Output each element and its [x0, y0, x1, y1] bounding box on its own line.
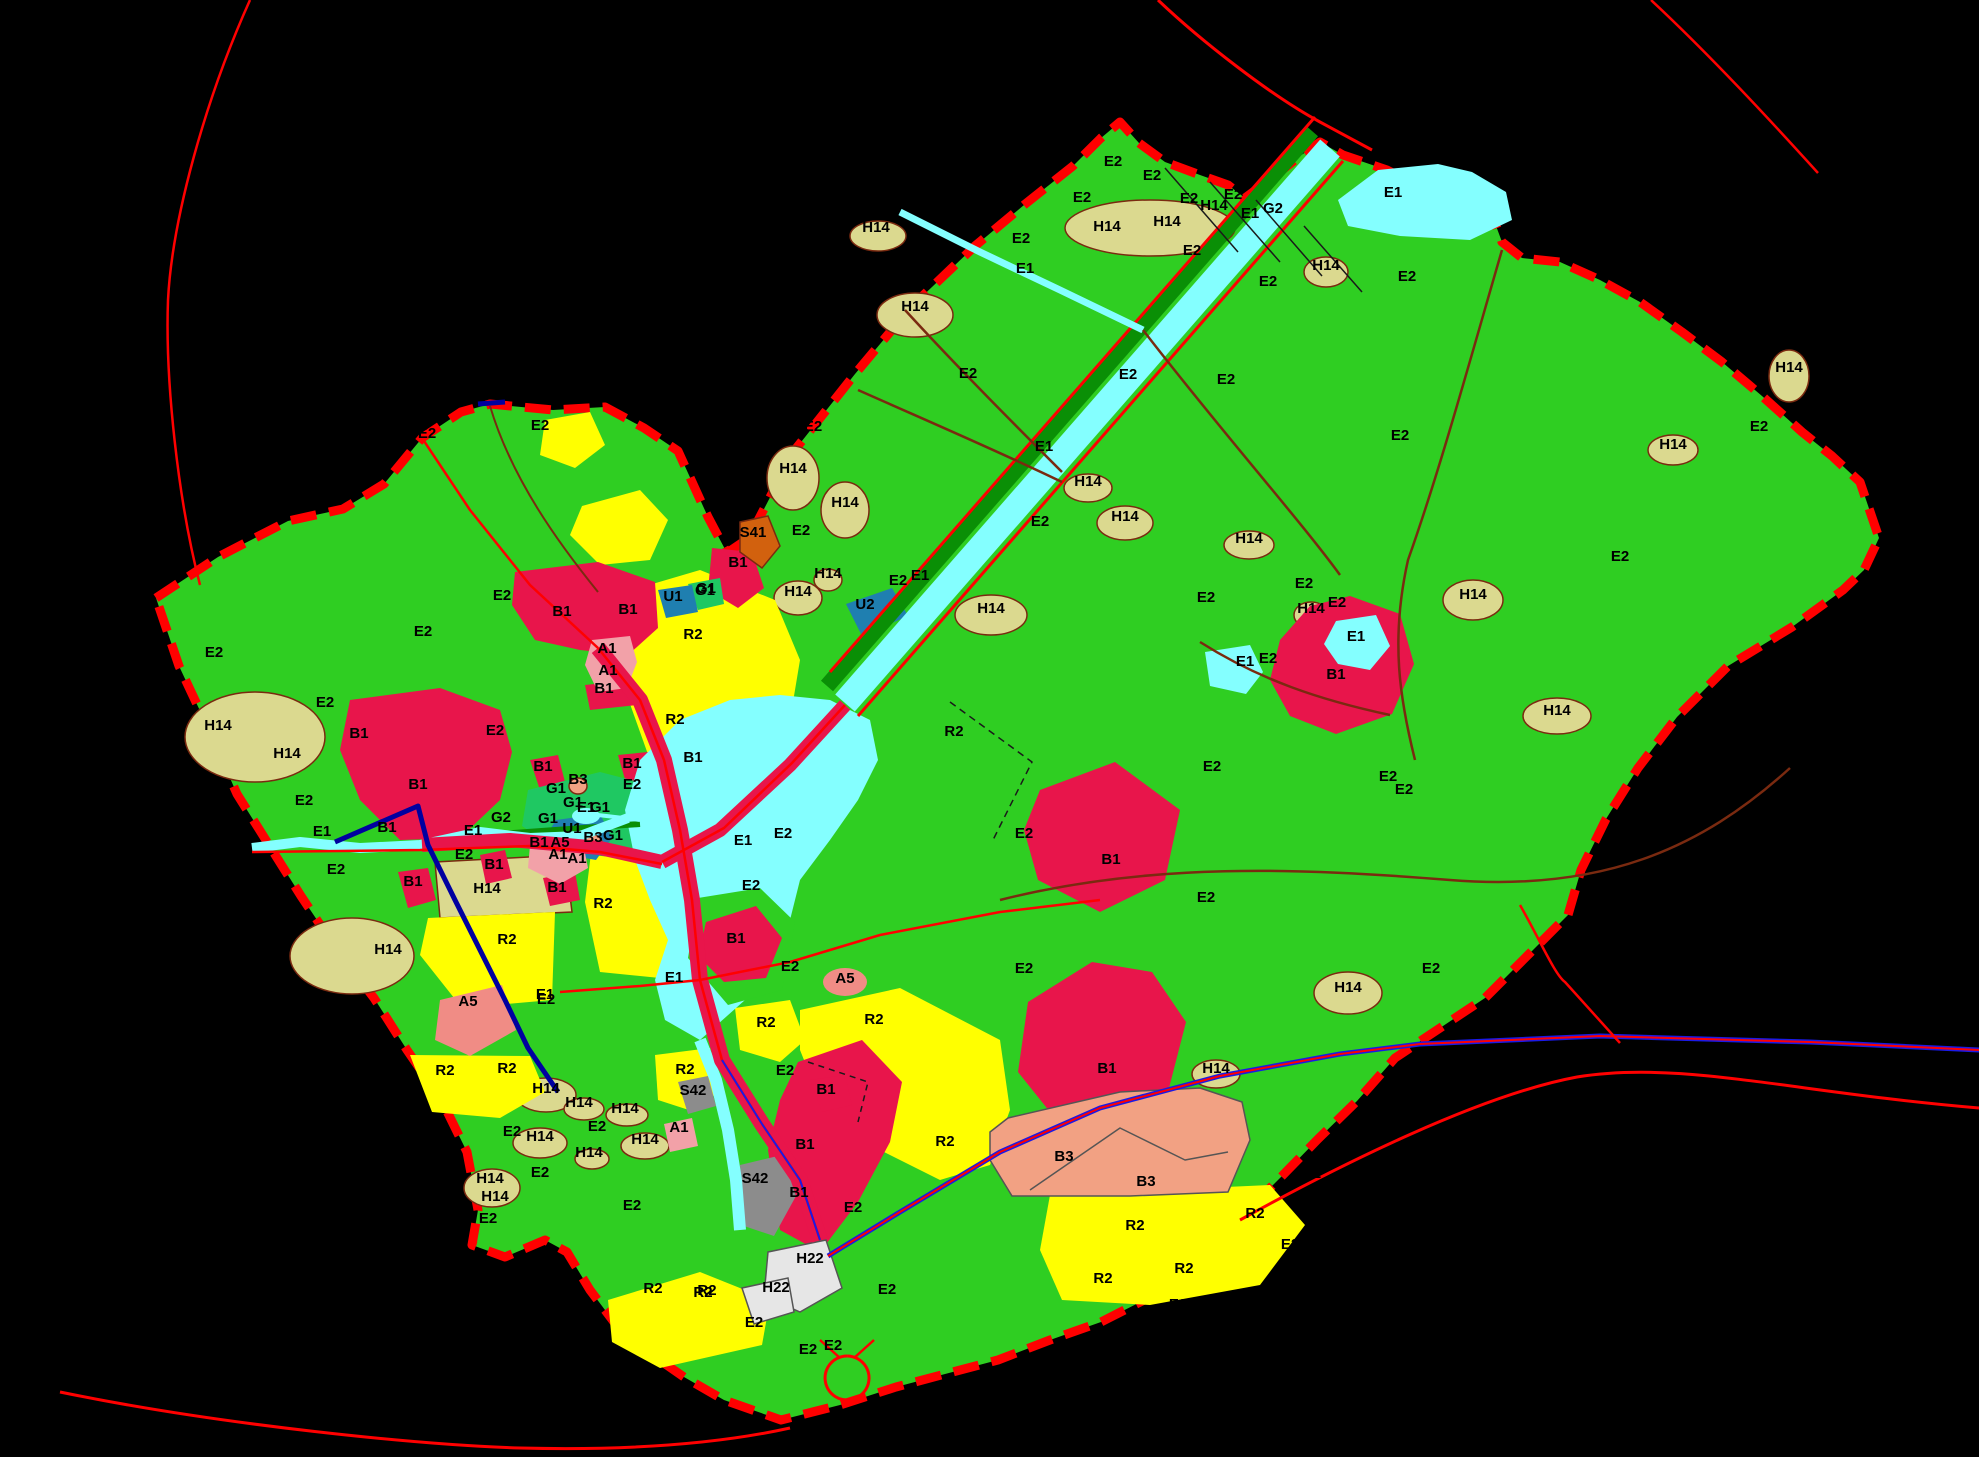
- zone-label: H14: [532, 1080, 560, 1097]
- zone-label: E2: [1197, 589, 1215, 606]
- zone-label: E2: [1398, 268, 1416, 285]
- zone-label: E2: [742, 877, 760, 894]
- zone-label: G1: [538, 810, 558, 827]
- zone-label: E2: [623, 1197, 641, 1214]
- zone-label: E2: [455, 846, 473, 863]
- zone-label: R2: [1125, 1217, 1144, 1234]
- zone-label: E2: [434, 1244, 452, 1261]
- zone-label: H14: [565, 1094, 593, 1111]
- zone-label: H14: [1153, 213, 1181, 230]
- zone-label: B3: [583, 829, 602, 846]
- zone-label: B3: [1054, 1148, 1073, 1165]
- zone-label: E2: [1183, 242, 1201, 259]
- zone-label: E2: [588, 1118, 606, 1135]
- zone-label: E2: [1169, 1296, 1187, 1313]
- zone-label: E2: [1422, 960, 1440, 977]
- zone-label: E2: [1119, 366, 1137, 383]
- zone-label: B1: [789, 1184, 808, 1201]
- zone-label: H14: [779, 460, 807, 477]
- zone-label: E2: [889, 572, 907, 589]
- zone-label: E2: [792, 522, 810, 539]
- zone-label: R2: [497, 931, 516, 948]
- zone-label: E1: [577, 799, 595, 816]
- zone-label: B1: [1097, 1060, 1116, 1077]
- zone-label: E2: [1035, 144, 1053, 161]
- zone-label: S41: [740, 524, 767, 541]
- zone-label: E2: [781, 958, 799, 975]
- zone-label: R2: [675, 1061, 694, 1078]
- zone-label: R2: [1093, 1270, 1112, 1287]
- zone-label: E2: [887, 192, 905, 209]
- zone-label: E2: [205, 644, 223, 661]
- zone-label: H14: [1543, 702, 1571, 719]
- zone-label: B1: [622, 755, 641, 772]
- zoning-map-svg: E2E2E2E2E2H14H14H14E2E1G2E2E1H14E1H14E2E…: [0, 0, 1979, 1457]
- zone-label: H14: [1200, 197, 1228, 214]
- zone-label: E2: [774, 825, 792, 842]
- zone-label: B1: [349, 725, 368, 742]
- zone-label: B1: [533, 758, 552, 775]
- zone-label: E1: [1035, 438, 1053, 455]
- zone-label: H14: [814, 565, 842, 582]
- zone-label: E2: [799, 1341, 817, 1358]
- zone-label: E2: [1379, 768, 1397, 785]
- zone-label: H14: [575, 1144, 603, 1161]
- zone-label: H14: [526, 1128, 554, 1145]
- zone-label: E1: [1016, 260, 1034, 277]
- zone-h14-west-big: [185, 692, 325, 782]
- zone-label: E2: [959, 365, 977, 382]
- zone-label: E2: [1395, 781, 1413, 798]
- zone-label: B1: [529, 834, 548, 851]
- zone-label: U2: [855, 596, 874, 613]
- zone-label: E2: [1015, 960, 1033, 977]
- zone-label: E2: [776, 1062, 794, 1079]
- zone-label: E2: [1303, 1165, 1321, 1182]
- zone-label: B3: [1136, 1173, 1155, 1190]
- zone-label: G2: [1263, 200, 1283, 217]
- zone-label: E2: [1328, 594, 1346, 611]
- zone-label: E2: [531, 417, 549, 434]
- zone-label: B3: [568, 771, 587, 788]
- zone-label: B1: [403, 873, 422, 890]
- zone-label: B1: [795, 1136, 814, 1153]
- zone-label: H14: [481, 1188, 509, 1205]
- zone-label: A5: [835, 970, 854, 987]
- zone-label: R2: [1174, 1260, 1193, 1277]
- zone-label: B1: [594, 680, 613, 697]
- zone-label: E2: [1143, 167, 1161, 184]
- zone-label: A1: [598, 662, 617, 679]
- zone-label: H22: [796, 1250, 824, 1267]
- zone-label: E2: [1750, 418, 1768, 435]
- zone-label: H14: [611, 1100, 639, 1117]
- zone-label: E2: [418, 425, 436, 442]
- zone-label: B1: [408, 776, 427, 793]
- zone-label: H14: [631, 1131, 659, 1148]
- zone-label: B1: [1326, 666, 1345, 683]
- zone-label: E1: [313, 823, 331, 840]
- zone-label: E2: [745, 1314, 763, 1331]
- zone-label: R2: [683, 626, 702, 643]
- zone-label: E2: [493, 587, 511, 604]
- zone-label: E2: [1281, 1236, 1299, 1253]
- zone-label: E1: [1236, 653, 1254, 670]
- zone-label: E2: [1012, 230, 1030, 247]
- zone-label: R2: [435, 1062, 454, 1079]
- zone-label: E2: [295, 792, 313, 809]
- zone-label: R2: [643, 1280, 662, 1297]
- zone-label: R2: [935, 1133, 954, 1150]
- zone-label: H14: [204, 717, 232, 734]
- zone-label: H14: [977, 600, 1005, 617]
- zone-label: S42: [742, 1170, 769, 1187]
- zone-label: H14: [831, 494, 859, 511]
- zone-label: H22: [762, 1279, 790, 1296]
- zone-label: E2: [824, 1337, 842, 1354]
- zone-label: B1: [547, 879, 566, 896]
- zone-label: B1: [552, 603, 571, 620]
- zone-label: G1: [695, 582, 715, 599]
- zone-label: B1: [484, 856, 503, 873]
- zone-label: R2: [944, 723, 963, 740]
- zone-label: H14: [1202, 1060, 1230, 1077]
- zone-label: E2: [1197, 889, 1215, 906]
- zone-label: E2: [1015, 825, 1033, 842]
- zone-label: E2: [1180, 190, 1198, 207]
- zone-label: E2: [486, 722, 504, 739]
- zone-label: E1: [1241, 205, 1259, 222]
- zone-label: A1: [548, 846, 567, 863]
- zone-label: E2: [1611, 548, 1629, 565]
- zone-label: H14: [1111, 508, 1139, 525]
- zone-label: E1: [1347, 628, 1365, 645]
- zone-label: R2: [864, 1011, 883, 1028]
- zone-label: B1: [726, 930, 745, 947]
- zone-label: E2: [878, 1281, 896, 1298]
- zone-label: E2: [1104, 153, 1122, 170]
- zone-label: A5: [458, 993, 477, 1010]
- zone-label: U1: [663, 588, 682, 605]
- zone-label: H14: [473, 880, 501, 897]
- zone-h14-neck1: [767, 446, 819, 510]
- zone-label: B1: [377, 819, 396, 836]
- zone-label: E2: [428, 1120, 446, 1137]
- zone-label: B1: [683, 749, 702, 766]
- zone-label: E2: [623, 776, 641, 793]
- zone-label: H14: [1459, 586, 1487, 603]
- navy-boundary-mark: [478, 402, 505, 404]
- zone-label: E1: [536, 986, 554, 1003]
- zone-h14-east4: [1769, 350, 1809, 402]
- zone-label: E2: [1259, 273, 1277, 290]
- zone-label: E2: [804, 418, 822, 435]
- zone-label: H14: [374, 941, 402, 958]
- zone-label: E1: [911, 567, 929, 584]
- zone-label: E2: [479, 1210, 497, 1227]
- zone-label: H14: [1235, 530, 1263, 547]
- zone-label: E2: [1031, 513, 1049, 530]
- zone-label: H14: [1334, 979, 1362, 996]
- zone-label: G2: [491, 809, 511, 826]
- zone-label: A1: [597, 640, 616, 657]
- zone-label: E2: [414, 623, 432, 640]
- zone-label: H14: [1312, 257, 1340, 274]
- zone-label: H14: [1093, 218, 1121, 235]
- zone-label: R2: [693, 1284, 712, 1301]
- zone-label: H14: [1659, 436, 1687, 453]
- zone-label: H14: [476, 1170, 504, 1187]
- zone-label: E1: [734, 832, 752, 849]
- zone-label: E2: [1391, 427, 1409, 444]
- zone-label: E2: [316, 694, 334, 711]
- zone-label: R2: [497, 1060, 516, 1077]
- zone-label: A1: [669, 1119, 688, 1136]
- zone-label: B1: [728, 554, 747, 571]
- zone-label: E2: [844, 1199, 862, 1216]
- zone-label: A1: [567, 850, 586, 867]
- zone-label: H14: [1297, 600, 1325, 617]
- zone-label: B1: [816, 1081, 835, 1098]
- zone-label: E2: [531, 1164, 549, 1181]
- zone-label: H14: [1074, 473, 1102, 490]
- zone-label: E1: [1384, 184, 1402, 201]
- zone-label: E2: [1259, 650, 1277, 667]
- zone-label: E2: [1217, 371, 1235, 388]
- zone-label: R2: [1245, 1205, 1264, 1222]
- zone-label: H14: [862, 219, 890, 236]
- zone-label: B1: [618, 601, 637, 618]
- zone-label: H14: [273, 745, 301, 762]
- zone-label: R2: [665, 711, 684, 728]
- zone-label: R2: [593, 895, 612, 912]
- zone-label: S42: [680, 1082, 707, 1099]
- zone-label: G1: [603, 827, 623, 844]
- zone-label: E1: [665, 969, 683, 986]
- zone-label: E2: [1295, 575, 1313, 592]
- zone-label: E2: [1203, 758, 1221, 775]
- zone-label: R2: [756, 1014, 775, 1031]
- zone-label: H14: [1775, 359, 1803, 376]
- zone-label: E2: [327, 861, 345, 878]
- zone-label: H14: [784, 583, 812, 600]
- zone-label: H14: [901, 298, 929, 315]
- zone-label: B1: [1101, 851, 1120, 868]
- zone-label: E1: [464, 822, 482, 839]
- map-viewport[interactable]: E2E2E2E2E2H14H14H14E2E1G2E2E1H14E1H14E2E…: [0, 0, 1979, 1457]
- zone-label: E2: [503, 1123, 521, 1140]
- zone-label: E2: [1073, 189, 1091, 206]
